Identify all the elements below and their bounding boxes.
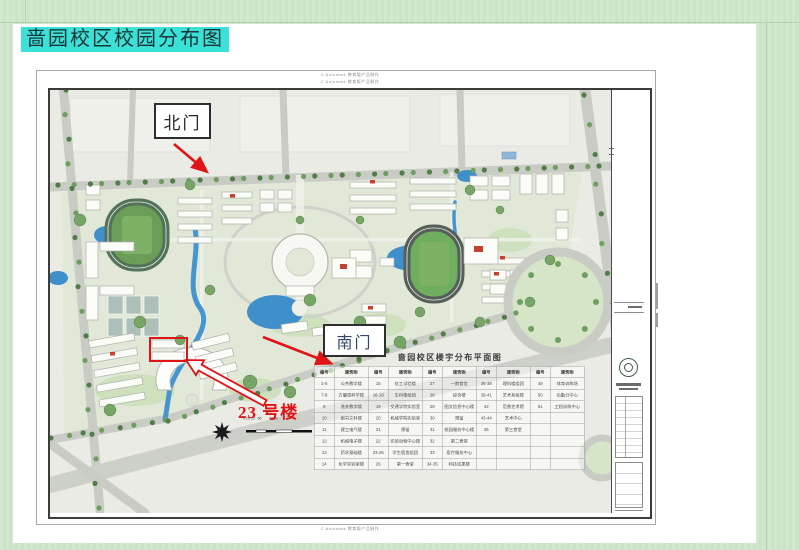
legend-cell [550,412,584,424]
drawing-number-vertical-text [656,313,658,327]
legend-cell: 化学实验室楼 [334,458,368,470]
legend-cell: 校园服务中心楼 [442,424,476,436]
legend-cell: 29 [422,401,442,413]
title-block-footer-line [615,510,643,511]
legend-cell [530,435,550,447]
legend-cell: 机械学院实验室 [388,412,422,424]
legend-table: 编号建筑物编号建筑物编号建筑物编号建筑物编号建筑物 1-6公共教学楼15化工试验… [314,366,585,470]
legend-row: 10图书文科楼20机械学院实验室30预留43-44艺术中心 [314,412,584,424]
legend-cell: 学生宿舍组团 [388,447,422,459]
legend-col-header: 建筑物 [550,366,584,378]
legend-cell [550,447,584,459]
legend-cell: 医疗服务中心 [442,447,476,459]
watermark-top: C Autodesk 教育版产品制作 C Autodesk 教育版产品制作 [200,72,799,90]
legend-cell: 22 [368,435,388,447]
legend-col-header: 建筑物 [388,366,422,378]
legend-cell: 后勤分中心 [550,389,584,401]
legend-cell: 27 [422,378,442,390]
legend-cell: 14 [314,458,334,470]
institute-subtitle-bar [619,388,638,390]
legend-cell: 13 [314,447,334,459]
background-gridline-horizontal [0,22,799,23]
legend-col-header: 编号 [422,366,442,378]
legend-cell: 28 [422,389,442,401]
legend-cell: 药学基础楼 [334,447,368,459]
legend-cell: 32 [422,435,442,447]
stadium-west [108,202,166,268]
legend-cell: 综合楼 [442,389,476,401]
frame-tick [609,148,614,149]
title-block-divider [614,302,644,313]
legend-cell: 43-44 [476,412,496,424]
frame-tick [609,154,614,155]
legend-cell: 科技成果楼 [442,458,476,470]
legend-cell: 实验动物中心楼 [388,435,422,447]
legend-cell: 7-8 [314,389,334,401]
background-gridline-vertical-left [25,0,26,22]
legend-cell: 建工电气楼 [334,424,368,436]
legend-cell: 第三食堂 [496,424,530,436]
legend-cell [530,458,550,470]
legend-col-header: 编号 [530,366,550,378]
drawing-number-vertical-text [656,283,658,309]
legend-cell: 49 [530,378,550,390]
legend-cell [530,424,550,436]
title-block [611,90,646,513]
legend-cell: 45 [476,424,496,436]
title-block-info-table [615,396,643,458]
legend-cell: 公共教学楼 [334,378,368,390]
legend-cell [530,412,550,424]
south-gate-callout: 南门 [323,324,386,357]
north-gate-label: 北门 [164,109,202,134]
university-seal-icon [619,358,638,377]
watermark-bottom: C Autodesk 教育版产品制作 [200,526,799,537]
legend-cell: 11 [314,424,334,436]
building-23-label: 23 号楼 [238,398,298,423]
legend-cell: 23-25 [368,447,388,459]
legend-cell: 39-41 [476,389,496,401]
legend-cell: 42 [476,401,496,413]
legend-cell: 体育训练场 [550,378,584,390]
legend-cell: 生科楼组团 [388,389,422,401]
legend-col-header: 编号 [314,366,334,378]
legend-cell: 31 [422,424,442,436]
legend-row: 7-8方肇周科学楼16-18生科楼组团28综合楼39-41艺术系组楼50后勤分中… [314,389,584,401]
legend-row: 1-6公共教学楼15化工试验楼27一期食堂36-38理科楼组团49体育训练场 [314,378,584,390]
legend-row: 11建工电气楼21预留31校园服务中心楼45第三食堂 [314,424,584,436]
legend-col-header: 编号 [476,366,496,378]
legend-col-header: 建筑物 [496,366,530,378]
legend-cell: 21 [368,424,388,436]
legend-col-header: 建筑物 [334,366,368,378]
legend-cell: 1-6 [314,378,334,390]
legend-cell: 33 [422,447,442,459]
north-gate-callout: 北门 [154,103,211,139]
title-block-signature-table [615,462,643,508]
legend-cell [476,458,496,470]
legend-cell: 第二食堂 [442,435,476,447]
legend-cell: 50 [530,389,550,401]
legend-cell: 工程训练中心 [550,401,584,413]
legend-col-header: 建筑物 [442,366,476,378]
legend-cell: 30 [422,412,442,424]
legend-row: 12机械电子楼22实验动物中心楼32第二食堂 [314,435,584,447]
legend-cell: 范曾艺术馆 [496,401,530,413]
legend-cell: 16-18 [368,389,388,401]
legend-col-header: 编号 [368,366,388,378]
legend-cell: 图文信息中心楼 [442,401,476,413]
legend-cell: 化工试验楼 [388,378,422,390]
legend-cell: 15 [368,378,388,390]
institute-name-bar [616,383,641,386]
legend-cell: 19 [368,401,388,413]
legend-cell [550,435,584,447]
legend-table-wrap: 编号建筑物编号建筑物编号建筑物编号建筑物编号建筑物 1-6公共教学楼15化工试验… [314,366,586,470]
legend-cell: 34-35 [422,458,442,470]
legend-cell: 12 [314,435,334,447]
legend-cell: 26 [368,458,388,470]
legend-cell: 预留 [388,424,422,436]
legend-cell [550,458,584,470]
slide-canvas: { "slide": { "title": "啬园校区校园分布图" }, "an… [0,0,799,550]
legend-cell: 51 [530,401,550,413]
legend-row: 9逸夫教学楼19交通学院实验室29图文信息中心楼42范曾艺术馆51工程训练中心 [314,401,584,413]
legend-cell: 第一食堂 [388,458,422,470]
legend-cell: 预留 [442,412,476,424]
legend-cell [530,447,550,459]
legend-cell: 艺术中心 [496,412,530,424]
legend-cell: 交通学院实验室 [388,401,422,413]
legend-cell [476,435,496,447]
legend-row: 13药学基础楼23-25学生宿舍组团33医疗服务中心 [314,447,584,459]
legend-cell: 理科楼组团 [496,378,530,390]
watermark-line: C Autodesk 教育版产品制作 [200,72,500,78]
south-gate-label: 南门 [336,329,372,353]
slide-title: 啬园校区校园分布图 [21,27,229,52]
legend-cell: 方肇周科学楼 [334,389,368,401]
legend-cell: 机械电子楼 [334,435,368,447]
legend-cell: 20 [368,412,388,424]
legend-cell: 逸夫教学楼 [334,401,368,413]
legend-cell: 一期食堂 [442,378,476,390]
legend-cell [496,447,530,459]
legend-cell: 9 [314,401,334,413]
watermark-line: C Autodesk 教育版产品制作 [200,79,500,85]
legend-cell: 图书文科楼 [334,412,368,424]
legend-cell [496,435,530,447]
legend-cell [550,424,584,436]
legend-cell [496,458,530,470]
legend-cell: 36-38 [476,378,496,390]
legend-cell [476,447,496,459]
background-gridline-vertical-right [766,22,767,550]
legend-cell: 艺术系组楼 [496,389,530,401]
stadium-east [407,228,461,300]
legend-row: 14化学实验室楼26第一食堂34-35科技成果楼 [314,458,584,470]
